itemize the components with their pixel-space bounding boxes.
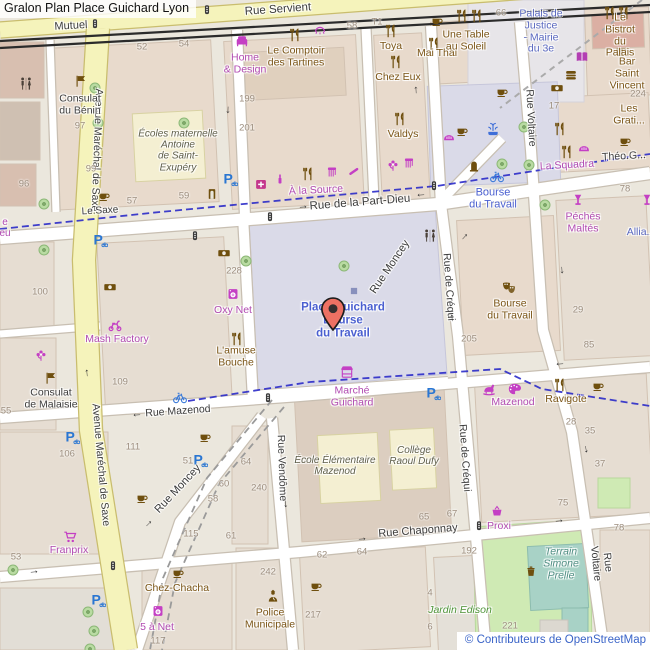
street-arrow: → (409, 84, 422, 96)
police-icon (266, 589, 281, 604)
monument-icon (349, 286, 359, 296)
parking-icon (90, 592, 106, 608)
poi-consulat-de-malaisie: Consulat de Malaisie (24, 387, 77, 411)
poi-theo-g: Théo.G... (602, 150, 646, 164)
poi-home-design: Home & Design (224, 52, 267, 76)
house-number: 28 (566, 417, 577, 428)
fountain-icon (486, 122, 501, 137)
house-number: 6 (427, 622, 432, 633)
poi-mazenod-shop: Mazenod (491, 397, 534, 409)
house-number: 240 (251, 483, 267, 494)
poi-proxi: Proxi (487, 521, 511, 533)
parking-icon (425, 385, 441, 401)
wine-bar-icon (641, 194, 650, 207)
restaurant-icon (554, 123, 567, 136)
house-number: 35 (585, 426, 596, 437)
street-arrow: → (553, 513, 565, 526)
bank-icon (218, 247, 231, 260)
tree-icon (179, 118, 190, 129)
poi-5-a-net: 5 à Net (140, 622, 174, 634)
house-number: 117 (150, 636, 165, 647)
restaurant-icon (385, 25, 398, 38)
parking-icon (64, 429, 80, 445)
theatre-masks-icon (501, 279, 517, 295)
convenience-icon (491, 505, 504, 518)
traffic-light-icon (108, 561, 119, 572)
cafe-icon (619, 135, 632, 148)
house-number: 53 (11, 552, 22, 563)
street-arrow: → (28, 564, 40, 577)
street-rue-vendome: Rue Vendôme (274, 435, 288, 502)
cafe-icon (172, 567, 185, 580)
traffic-light-icon (90, 19, 101, 30)
waste-basket-icon (525, 565, 538, 578)
barber-icon (348, 165, 361, 178)
street-rue-voltaire-1: Rue Voltaire (523, 89, 538, 147)
tree-icon (241, 256, 252, 267)
map-canvas[interactable]: P Rue ServientAvenue Maréchal de SaxeAve… (0, 0, 650, 650)
street-arrow: → (79, 367, 92, 379)
tree-icon (8, 565, 19, 576)
pharmacy-icon (255, 178, 268, 191)
house-number: 60 (219, 479, 230, 490)
traffic-light-icon (429, 181, 440, 192)
house-number: 67 (447, 509, 458, 520)
poi-ravigote: Ravigote (545, 394, 586, 406)
poi-mutuel: Mutuel (54, 19, 88, 33)
poi-les-grati: Les Grati... (613, 103, 645, 127)
poi-police-municipale: Police Municipale (245, 607, 295, 631)
poi-bar-saint-vincent: Bar Saint Vincent (610, 56, 645, 91)
street-arrow: → (444, 312, 457, 324)
restaurant-icon (289, 29, 302, 42)
poi-consulat-du-benin: Consulat du Bénin (59, 93, 100, 117)
art-shop-icon (507, 382, 521, 396)
poi-le-comptoir-des-tartines: Le Comptoir des Tartines (267, 45, 324, 69)
house-number: 61 (226, 531, 237, 542)
house-number: 54 (179, 39, 190, 50)
poi-ecoles-maternelle: Écoles maternelle Antoine de Saint- Exup… (138, 129, 217, 174)
street-rue-voltaire-2: Rue Voltaire (587, 537, 615, 588)
nail-salon-icon (274, 173, 287, 186)
tree-icon (339, 261, 350, 272)
cafe-icon (431, 15, 444, 28)
traffic-light-icon (265, 212, 276, 223)
poi-college-raoul-dufy: Collège Raoul Dufy (389, 445, 438, 467)
tree-icon (83, 607, 94, 618)
poi-ecole-elementaire-mazenod: École Élémentaire Mazenod (294, 455, 375, 477)
house-number: 51 (183, 456, 194, 467)
house-number: 4 (427, 588, 432, 599)
house-number: 205 (461, 334, 477, 345)
tree-icon (524, 160, 535, 171)
poi-valdys: Valdys (388, 129, 419, 141)
traffic-light-icon (263, 393, 274, 404)
poi-marche-guichard: Marché Guichard (331, 385, 374, 409)
bank-icon (104, 281, 117, 294)
traffic-light-icon (190, 231, 201, 242)
house-number: 75 (558, 498, 569, 509)
restaurant-icon (561, 146, 574, 159)
poi-le-bistrot-du-palais: Le Bistrot du Palais (605, 13, 635, 60)
house-number: 78 (614, 523, 625, 534)
cafe-icon (456, 125, 469, 138)
house-number: 64 (241, 457, 252, 468)
house-number: 58 (208, 494, 219, 505)
house-number: T1 (371, 17, 382, 28)
restaurant-icon (390, 56, 403, 69)
cafe-icon (199, 431, 212, 444)
traffic-light-icon (474, 521, 485, 532)
consulate-flag-icon (45, 372, 58, 385)
house-number: 85 (584, 340, 595, 351)
house-number: 57 (127, 196, 138, 207)
house-number: 217 (305, 610, 321, 621)
house-number: 221 (502, 621, 518, 632)
poi-mash-factory: Mash Factory (85, 334, 149, 346)
street-arrow: → (415, 189, 427, 202)
house-number: 201 (239, 123, 255, 134)
fast-food-icon (565, 69, 578, 82)
house-number: 59 (179, 191, 190, 202)
house-number: 65 (419, 512, 430, 523)
street-arrow: → (131, 409, 143, 422)
house-number: 62 (317, 550, 328, 561)
parking-icon (92, 232, 108, 248)
house-number: 224 (630, 89, 646, 100)
house-number: 52 (137, 42, 148, 53)
poi-terrain-simone-prelle: Terrain Simone Prelle (543, 546, 579, 581)
poi-une-table-au-soleil: Une Table au Soleil (442, 29, 489, 53)
bank-icon (551, 82, 564, 95)
house-number: 115 (183, 529, 198, 540)
house-number: 78 (620, 184, 631, 195)
wine-bar-icon (572, 194, 585, 207)
street-arrow: → (356, 531, 368, 544)
house-number: 55 (1, 406, 12, 417)
bakery-icon (443, 131, 456, 144)
poi-palais-de-justice: Palais de Justice - Mairie du 3e (519, 9, 562, 56)
house-number: 64 (357, 547, 368, 558)
street-arrow: → (223, 104, 236, 115)
restaurant-icon (394, 113, 407, 126)
station-le-saxe: Le.Saxe (81, 204, 118, 217)
street-arrow: → (556, 264, 569, 276)
poi-toya: Toya (380, 41, 402, 53)
laundry-icon (227, 288, 240, 301)
house-number: 106 (59, 449, 75, 460)
parking-icon (222, 171, 238, 187)
poi-franprix: Franprix (50, 545, 89, 557)
consulate-flag-icon (75, 75, 88, 88)
library-icon (575, 50, 589, 64)
restaurant-icon (456, 10, 469, 23)
house-number: 29 (573, 305, 584, 316)
moped-icon (108, 318, 123, 333)
memorial-icon (468, 160, 481, 173)
poi-jardin-edison: Jardin Edison (428, 605, 492, 617)
station-bourse-du-travail: Bourse du Travail (469, 187, 517, 212)
florist-icon (387, 159, 400, 172)
house-number: 242 (260, 567, 276, 578)
tree-icon (39, 245, 50, 256)
restaurant-icon (302, 168, 315, 181)
house-number: 192 (461, 546, 477, 557)
bicycle-rental-icon (490, 169, 505, 184)
cafe-icon (592, 380, 605, 393)
toilets-icon (423, 229, 438, 244)
tree-icon (89, 626, 100, 637)
street-arrow: → (554, 358, 566, 371)
street-arrow: → (297, 199, 309, 212)
laundry-icon (152, 605, 165, 618)
poi-oxy-net: Oxy Net (214, 305, 252, 317)
map-marker[interactable] (320, 297, 346, 331)
house-number: 37 (595, 459, 606, 470)
house-number: 109 (112, 377, 128, 388)
cafe-icon (136, 492, 149, 505)
florist-icon (35, 349, 48, 362)
poi-bourse-du-travail-building: Bourse du Travail (487, 298, 533, 322)
house-number: 228 (226, 266, 242, 277)
hairdresser-icon (403, 157, 416, 170)
house-number: 66 (496, 8, 507, 19)
poi-lamuse-bouche: L'amuse Bouche (216, 345, 255, 369)
house-number: 99 (86, 164, 97, 175)
house-number: 111 (126, 442, 140, 453)
house-number: 17 (549, 101, 560, 112)
house-number: 97 (75, 121, 86, 132)
market-stall-icon (340, 365, 355, 380)
bakery-icon (578, 142, 591, 155)
toy-shop-icon (482, 382, 497, 397)
house-number: 100 (32, 287, 48, 298)
house-number: 58 (347, 21, 358, 32)
tree-icon (540, 200, 551, 211)
poi-chez-eux: Chez Eux (375, 72, 421, 84)
poi-allia: Allia... (627, 227, 650, 239)
toilets-icon (19, 77, 34, 92)
restaurant-icon (471, 10, 484, 23)
osm-attribution-link[interactable]: © Contributeurs de OpenStreetMap (457, 632, 650, 650)
hairdresser-icon (326, 166, 339, 179)
doorway-icon (206, 188, 219, 201)
tree-icon (39, 199, 50, 210)
cafe-icon (496, 86, 509, 99)
street-arrow: → (580, 443, 594, 456)
poi-peches-maltes: Péchés Maltés (565, 211, 600, 235)
house-number: 96 (19, 179, 30, 190)
street-arrow: → (281, 499, 293, 510)
cafe-icon (310, 580, 323, 593)
house-number: 199 (239, 94, 255, 105)
poi-chez-chacha: Chez-Chacha (145, 583, 209, 595)
beauty-icon (314, 25, 327, 38)
poi-fragment-left: e eu (0, 217, 11, 239)
supermarket-icon (63, 530, 77, 544)
traffic-light-icon (202, 5, 213, 16)
furniture-icon (235, 34, 249, 48)
page-title: Gralon Plan Place Guichard Lyon (0, 0, 196, 18)
tree-icon (85, 644, 96, 650)
bicycle-rental-icon (173, 390, 188, 405)
restaurant-icon (554, 379, 567, 392)
